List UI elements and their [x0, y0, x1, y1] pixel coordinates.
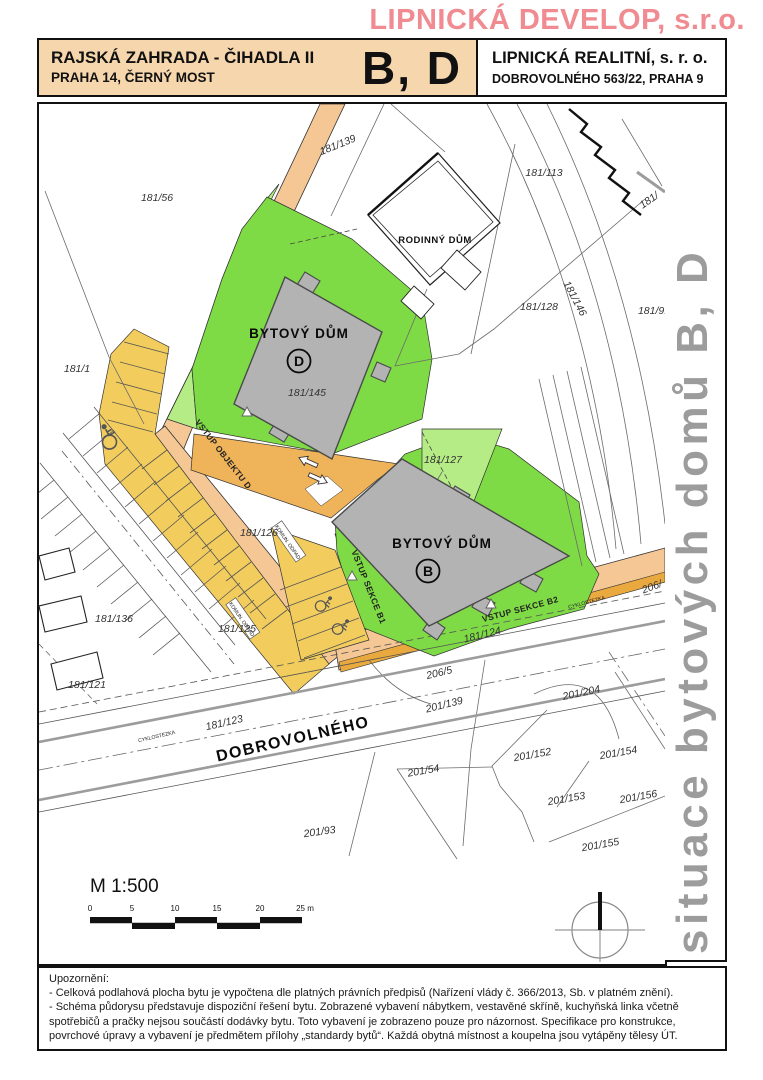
- scale-tick: 5: [130, 904, 135, 913]
- title-block: RAJSKÁ ZAHRADA - ČIHADLA II PRAHA 14, ČE…: [37, 38, 727, 97]
- building-codes: B, D: [362, 41, 462, 95]
- parcel-label: 181/145: [288, 387, 326, 399]
- parcel-label: 201/156: [618, 788, 659, 807]
- scale-tick: 25 m: [296, 904, 314, 913]
- parcel-label: 201/139: [423, 695, 464, 716]
- building-b-label: BYTOVÝ DŮM: [392, 535, 492, 551]
- parcel-label: 201/155: [580, 836, 621, 855]
- scale-tick: 10: [171, 904, 180, 913]
- parcel-label: 181/113: [525, 167, 562, 179]
- parcel-label: 181/127: [424, 454, 463, 466]
- footer-heading: Upozornění:: [49, 972, 715, 986]
- footer-note: - Celková podlahová plocha bytu je vypoč…: [49, 986, 715, 1000]
- parcel-label: 181/121: [68, 679, 106, 691]
- existing-building-edge: [569, 109, 641, 215]
- scale-tick: 15: [213, 904, 222, 913]
- north-arrow-icon: [555, 892, 645, 962]
- footer-notes: Upozornění: - Celková podlahová plocha b…: [37, 966, 727, 1051]
- bike-path-label: CYKLOSTEZKA: [138, 730, 177, 744]
- parcel-label: 181/56: [141, 192, 173, 204]
- parcel-label: 181/136: [95, 613, 133, 625]
- realtor-address: DOBROVOLNÉHO 563/22, PRAHA 9: [492, 72, 725, 86]
- scale-tick: 20: [256, 904, 265, 913]
- parcel-label: 181/125: [218, 623, 256, 635]
- small-buildings: [39, 548, 103, 690]
- title-block-realtor-cell: LIPNICKÁ REALITNÍ, s. r. o. DOBROVOLNÉHO…: [476, 40, 725, 95]
- parcel-label: 201/154: [598, 744, 639, 763]
- parcel-label: 181/123: [204, 713, 244, 733]
- building-d-letter: D: [294, 353, 304, 369]
- realtor-name: LIPNICKÁ REALITNÍ, s. r. o.: [492, 49, 725, 68]
- parcel-label: 181/126: [240, 527, 278, 539]
- parcel-label: 181/146: [560, 279, 588, 318]
- parcel-label: 201/153: [546, 790, 587, 809]
- parcel-label: 201/93: [302, 824, 337, 841]
- sidebar-vertical-title: situace bytových domů B, D: [668, 248, 718, 954]
- parcel-label: 181/: [637, 189, 662, 211]
- parcel-label: 181/91: [638, 305, 665, 317]
- scale-tick: 0: [88, 904, 93, 913]
- site-plan-map: BYTOVÝ DŮM D BYTOVÝ DŮM B RODINNÝ DŮM: [37, 102, 667, 966]
- family-house-label: RODINNÝ DŮM: [398, 234, 472, 246]
- parcel-label: 201/54: [406, 762, 441, 780]
- scale-label: M 1:500: [90, 876, 159, 897]
- title-block-project-cell: RAJSKÁ ZAHRADA - ČIHADLA II PRAHA 14, ČE…: [39, 40, 476, 95]
- parcel-label: 181/128: [520, 301, 558, 313]
- building-d-label: BYTOVÝ DŮM: [249, 325, 349, 341]
- site-plan-svg: BYTOVÝ DŮM D BYTOVÝ DŮM B RODINNÝ DŮM: [39, 104, 665, 964]
- parcel-label: 201/204: [561, 683, 602, 703]
- parcel-label: 201/152: [512, 746, 553, 765]
- gray-edge-line: [637, 172, 665, 192]
- scale-bar-group: M 1:500 0 5 10 15 20 25 m: [88, 876, 314, 929]
- parcel-label: 181/1: [64, 363, 90, 375]
- footer-note: - Schéma půdorysu představuje dispoziční…: [49, 1000, 715, 1043]
- site-plan-page: LIPNICKÁ DEVELOP, s.r.o. RAJSKÁ ZAHRADA …: [0, 0, 763, 1080]
- company-header: LIPNICKÁ DEVELOP, s.r.o.: [369, 4, 745, 37]
- building-b-letter: B: [423, 563, 433, 579]
- sidebar-strip: situace bytových domů B, D: [665, 102, 727, 962]
